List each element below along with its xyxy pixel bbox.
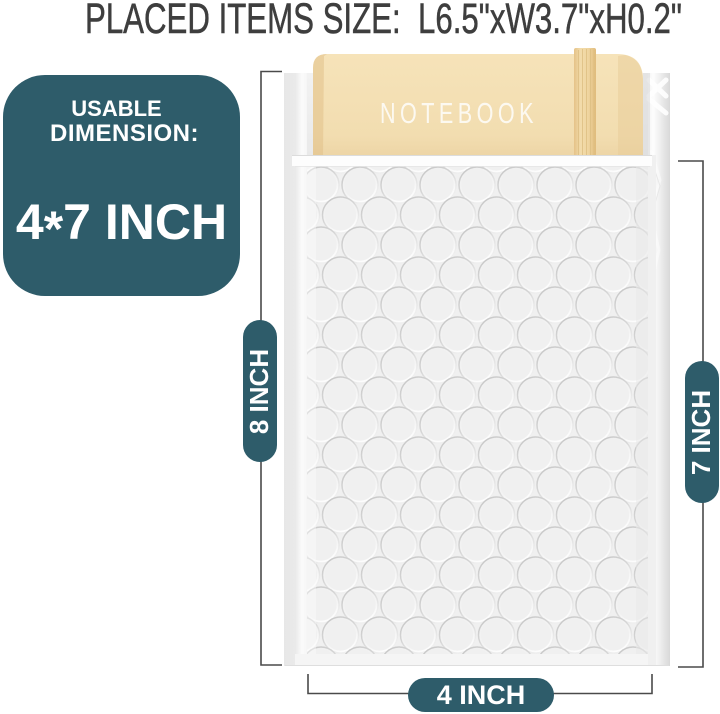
svg-text:PLACED ITEMS SIZE: L6.5"xW3.7: PLACED ITEMS SIZE: L6.5"xW3.7"xH0.2" bbox=[85, 0, 682, 43]
svg-text:NOTEBOOK: NOTEBOOK bbox=[380, 98, 538, 130]
